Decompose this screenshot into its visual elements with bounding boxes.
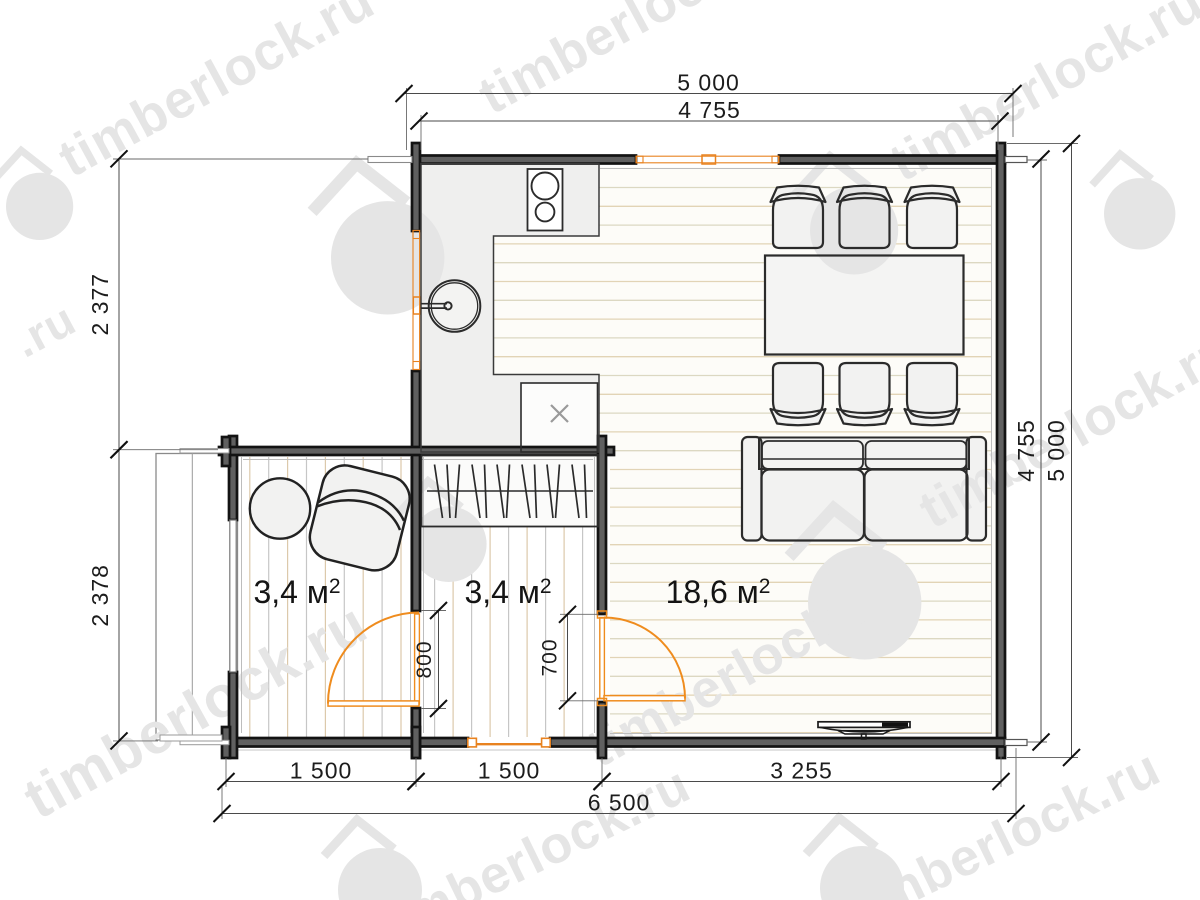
svg-text:4 755: 4 755: [1013, 419, 1039, 482]
svg-text:18,6 м2: 18,6 м2: [666, 574, 771, 610]
svg-text:800: 800: [413, 640, 436, 678]
svg-text:2 377: 2 377: [87, 273, 113, 336]
svg-text:2 378: 2 378: [87, 564, 113, 627]
svg-text:5 000: 5 000: [1043, 419, 1069, 482]
svg-text:6 500: 6 500: [588, 790, 651, 816]
svg-text:3,4 м2: 3,4 м2: [253, 574, 340, 610]
svg-text:4 755: 4 755: [678, 97, 741, 123]
svg-text:700: 700: [539, 638, 562, 676]
svg-text:3,4 м2: 3,4 м2: [464, 574, 551, 610]
svg-text:5 000: 5 000: [677, 70, 740, 96]
svg-text:1 500: 1 500: [478, 758, 541, 784]
svg-text:3 255: 3 255: [770, 758, 833, 784]
svg-text:1 500: 1 500: [290, 758, 353, 784]
